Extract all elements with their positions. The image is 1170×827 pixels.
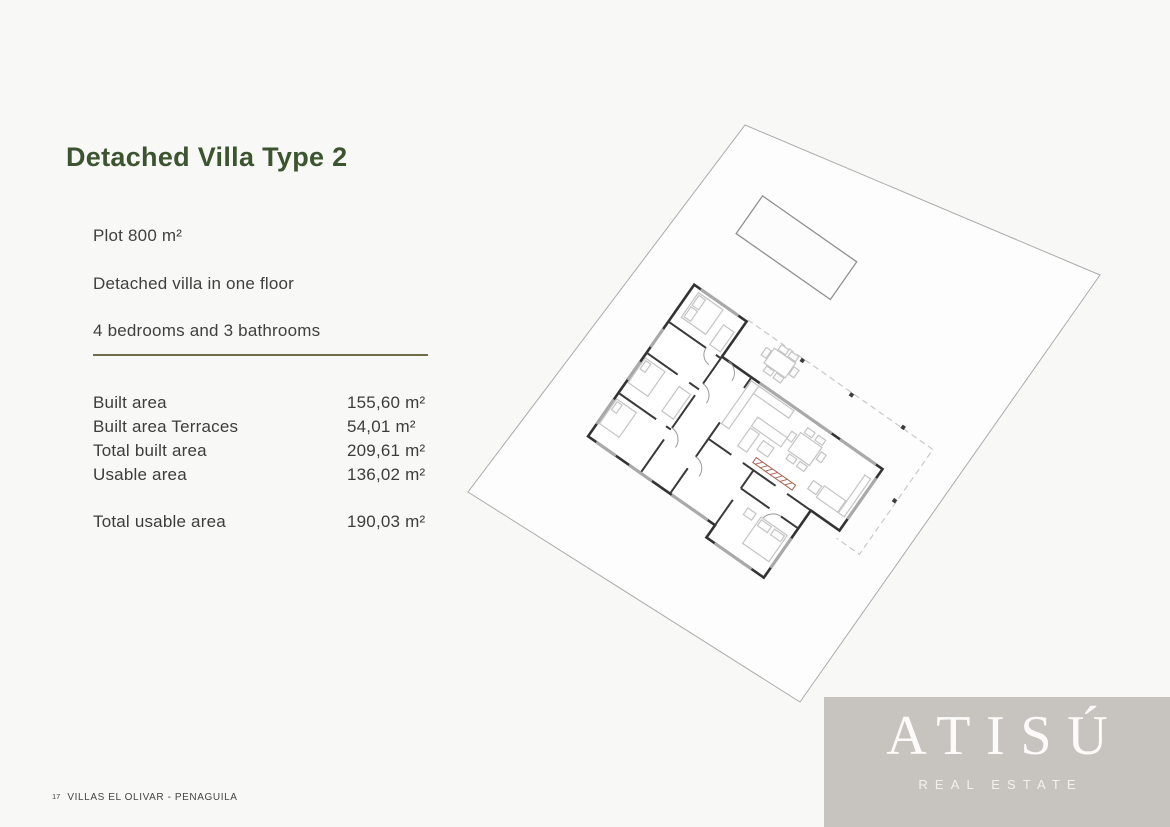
brand-name: ATISÚ xyxy=(840,703,1170,769)
page-title: Detached Villa Type 2 xyxy=(66,142,347,173)
feature-plot: Plot 800 m² xyxy=(93,226,182,246)
area-value: 190,03 m² xyxy=(347,512,425,532)
area-value: 54,01 m² xyxy=(347,417,416,437)
brand-logo: ATISÚ REAL ESTATE xyxy=(824,697,1170,827)
table-row: Usable area 136,02 m² xyxy=(93,465,453,485)
area-value: 136,02 m² xyxy=(347,465,425,485)
table-row: Total built area 209,61 m² xyxy=(93,441,453,461)
project-name: VILLAS EL OLIVAR - PENAGUILA xyxy=(67,792,237,803)
area-label: Total built area xyxy=(93,441,207,460)
feature-rooms: 4 bedrooms and 3 bathrooms xyxy=(93,321,320,341)
area-label: Usable area xyxy=(93,465,187,484)
area-label: Built area Terraces xyxy=(93,417,238,436)
feature-floors: Detached villa in one floor xyxy=(93,274,294,294)
table-row-total: Total usable area 190,03 m² xyxy=(93,512,453,532)
brand-tagline: REAL ESTATE xyxy=(831,777,1170,792)
divider-line xyxy=(93,354,428,356)
area-label: Built area xyxy=(93,393,167,412)
area-value: 155,60 m² xyxy=(347,393,425,413)
table-row: Built area Terraces 54,01 m² xyxy=(93,417,453,437)
brochure-page: Detached Villa Type 2 Plot 800 m² Detach… xyxy=(0,0,1170,827)
area-value: 209,61 m² xyxy=(347,441,425,461)
area-label: Total usable area xyxy=(93,512,226,531)
page-number: 17 xyxy=(52,792,60,801)
footer: 17VILLAS EL OLIVAR - PENAGUILA xyxy=(52,792,238,803)
table-row: Built area 155,60 m² xyxy=(93,393,453,413)
